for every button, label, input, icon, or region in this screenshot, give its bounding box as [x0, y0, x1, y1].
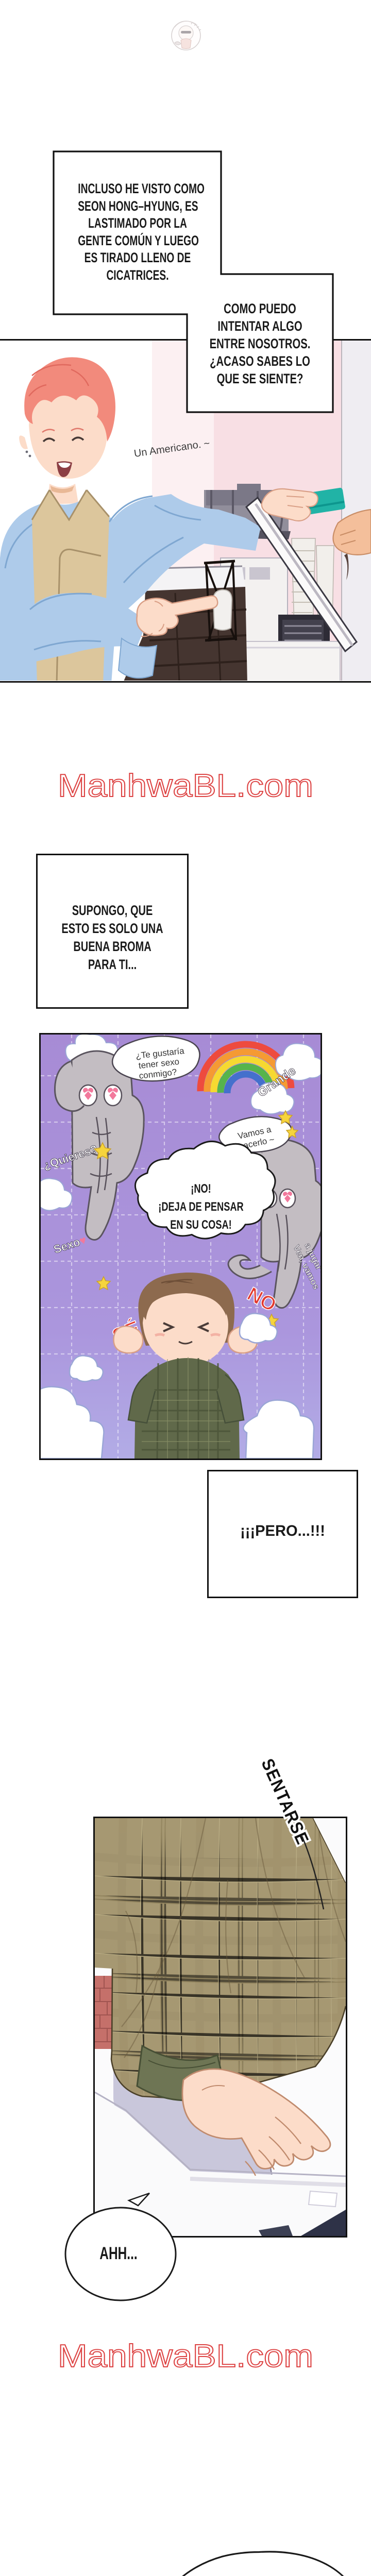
svg-text:¡DEJA DE PENSAR: ¡DEJA DE PENSAR [158, 1200, 243, 1214]
svg-text:ManhwaBL.com: ManhwaBL.com [58, 768, 313, 804]
svg-text:ManhwaBL.com: ManhwaBL.com [58, 2338, 313, 2374]
svg-text:EN SU COSA!: EN SU COSA! [170, 1218, 231, 1232]
svg-text:AHH...: AHH... [99, 2244, 137, 2263]
svg-text:¡NO!: ¡NO! [191, 1182, 211, 1196]
